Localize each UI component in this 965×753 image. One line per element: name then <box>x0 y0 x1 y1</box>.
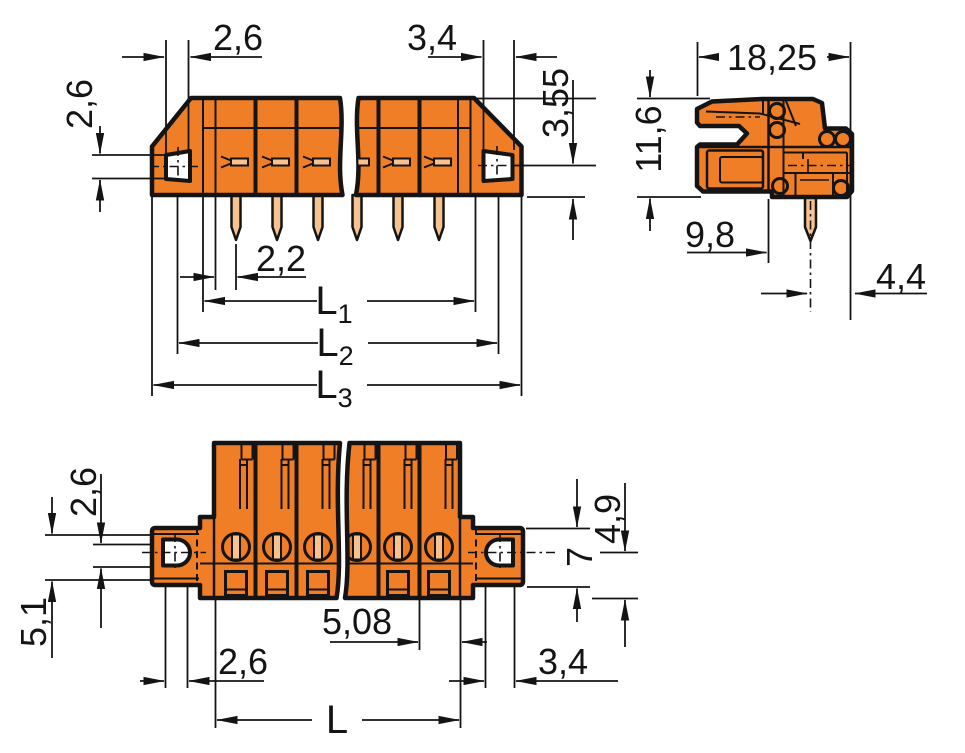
dim-front-lengths: L1 L2 L3 <box>152 197 522 413</box>
dim-label-bottom-flange-span: 5,1 <box>13 597 54 647</box>
dim-label-side-height: 11,6 <box>628 105 669 172</box>
dim-label-front-top-left: 2,6 <box>213 17 263 58</box>
dim-label-front-pin-row-offset: 3,55 <box>535 68 576 138</box>
dim-label-side-pin-back: 4,4 <box>876 256 926 297</box>
front-view-pins <box>232 195 444 240</box>
drawing-canvas: 2,6 3,4 3,55 2,6 <box>0 0 965 753</box>
side-view: 18,25 11,6 9,8 4,4 <box>628 37 927 320</box>
dim-bottom-flange-span: 5,1 <box>13 497 54 658</box>
dim-label-side-depth: 9,8 <box>685 214 735 255</box>
dim-label-bottom-slot-right: 3,4 <box>538 641 588 682</box>
dim-side-pin-back: 4,4 <box>761 256 927 297</box>
dim-label-front-pin-offset: 2,2 <box>256 238 306 279</box>
front-view: 2,6 3,4 3,55 2,6 <box>59 17 596 413</box>
dim-side-depth: 9,8 <box>685 199 769 263</box>
dim-label-bottom-offset: 4,9 <box>587 494 628 544</box>
connector-dimensional-drawing: 2,6 3,4 3,55 2,6 <box>0 0 965 753</box>
dim-label-bottom-hole-height: 2,6 <box>63 467 104 517</box>
dim-label-bottom-slot-left: 2,6 <box>218 641 268 682</box>
dim-label-front-top-right: 3,4 <box>407 17 457 58</box>
dim-label-bottom-length: L <box>326 698 348 742</box>
dim-label-bottom-pitch: 5,08 <box>322 601 392 642</box>
dim-bottom-hole-height: 2,6 <box>45 467 151 628</box>
bottom-body-right <box>345 443 523 598</box>
dim-label-side-width: 18,25 <box>727 37 817 78</box>
dim-bottom-slot-left: 2,6 <box>140 587 268 688</box>
dim-bottom-slot-right: 3,4 <box>449 587 618 688</box>
dim-front-hole-left: 2,6 <box>59 79 165 212</box>
bottom-view: 2,6 5,1 5,08 2,6 3 <box>13 443 638 742</box>
dim-label-front-hole-left: 2,6 <box>59 79 100 129</box>
dim-label-bottom-flange-height: 7 <box>559 547 600 567</box>
dim-front-pin-offset: 2,2 <box>180 197 306 290</box>
